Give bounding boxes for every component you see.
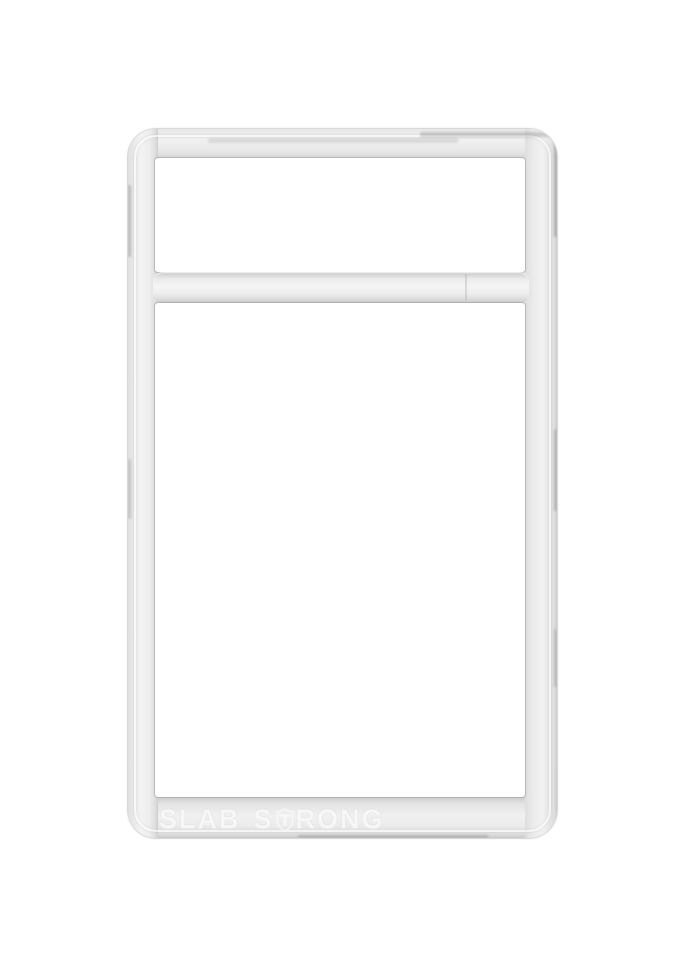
frame-bottom-rail xyxy=(128,797,557,838)
brand-word-strong: S RONG xyxy=(254,804,385,835)
product-photo: SLAB S RONG xyxy=(0,0,695,960)
shadow-smudge xyxy=(208,138,458,143)
shadow-smudge xyxy=(128,185,131,257)
brand-emboss: SLAB S RONG xyxy=(159,803,385,835)
grading-label-window xyxy=(155,158,525,272)
brand-word-slab: SLAB xyxy=(159,804,241,835)
shadow-smudge xyxy=(128,459,131,519)
shield-t-icon xyxy=(275,808,295,832)
shadow-smudge xyxy=(554,429,557,511)
shadow-smudge xyxy=(298,835,488,838)
frame-top-rail xyxy=(128,129,557,160)
divider-seam xyxy=(465,274,467,301)
brand-letters-rong: RONG xyxy=(296,804,385,835)
frame-left-rail xyxy=(128,129,158,838)
divider-bar xyxy=(153,272,529,303)
card-window xyxy=(155,303,525,797)
shadow-smudge xyxy=(554,629,557,687)
slab-frame: SLAB S RONG xyxy=(128,129,557,838)
shadow-smudge xyxy=(420,132,555,137)
brand-letter-s: S xyxy=(254,804,274,835)
shadow-smudge xyxy=(554,141,557,237)
frame-right-rail xyxy=(525,129,557,838)
